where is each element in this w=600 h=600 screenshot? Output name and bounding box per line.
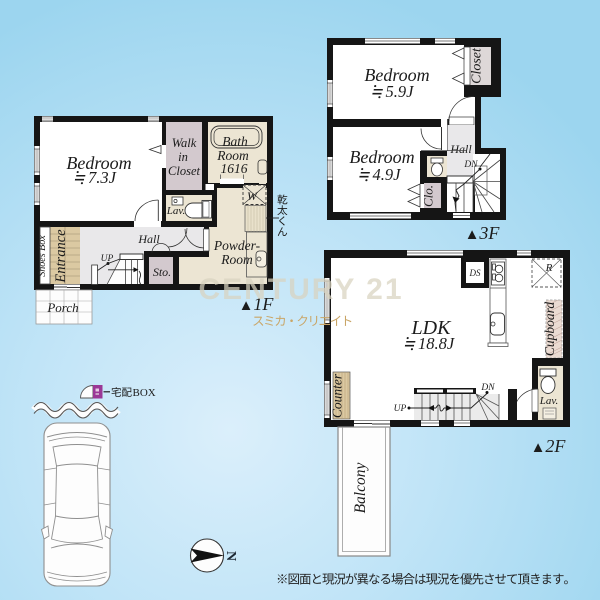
svg-text:Hall: Hall (449, 142, 472, 156)
svg-text:Hall: Hall (137, 232, 160, 246)
svg-text:Walk: Walk (172, 136, 197, 150)
svg-text:Balcony: Balcony (352, 462, 369, 513)
svg-text:in: in (178, 150, 188, 164)
svg-text:1616: 1616 (221, 161, 248, 176)
svg-text:BOX: BOX (133, 387, 156, 399)
svg-text:7.3J: 7.3J (88, 168, 117, 187)
svg-text:N: N (223, 551, 238, 561)
svg-text:Counter: Counter (330, 373, 345, 418)
svg-text:Room: Room (220, 252, 253, 267)
svg-text:Cupboard: Cupboard (542, 302, 557, 357)
svg-text:DN: DN (480, 383, 495, 393)
svg-text:5.9J: 5.9J (386, 82, 415, 101)
svg-text:Lav.: Lav. (539, 395, 558, 407)
svg-text:UP: UP (394, 404, 407, 414)
svg-text:Shoes Box: Shoes Box (37, 235, 48, 277)
svg-text:W: W (247, 189, 258, 203)
svg-text:Sto.: Sto. (153, 265, 171, 279)
svg-text:DS: DS (469, 268, 481, 278)
svg-text:18.8J: 18.8J (418, 334, 455, 353)
svg-text:Closet: Closet (168, 164, 200, 178)
svg-text:Closet: Closet (470, 47, 485, 84)
svg-text:CENTURY 21: CENTURY 21 (198, 273, 403, 306)
svg-text:Clo.: Clo. (421, 185, 436, 207)
svg-text:DN: DN (463, 160, 478, 170)
svg-text:4.9J: 4.9J (373, 165, 402, 184)
svg-text:Powder-: Powder- (213, 238, 261, 253)
svg-text:Bedroom: Bedroom (349, 147, 414, 167)
svg-text:Lav.: Lav. (166, 205, 185, 217)
svg-text:Porch: Porch (46, 300, 78, 315)
svg-text:Bath: Bath (222, 134, 248, 149)
svg-text:R: R (545, 262, 553, 274)
svg-text:Entrance: Entrance (53, 229, 69, 284)
